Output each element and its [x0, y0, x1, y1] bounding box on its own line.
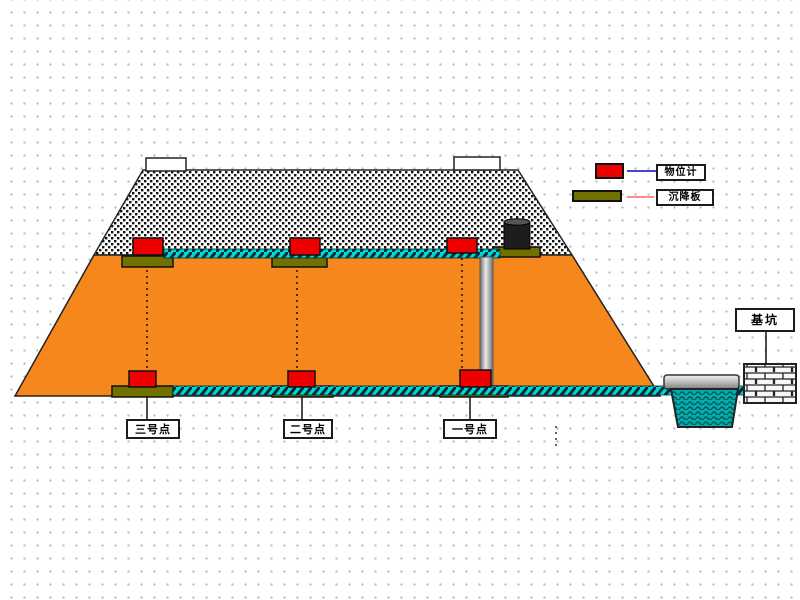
- riser-pipe: [480, 257, 493, 388]
- standpipe-icon: [504, 222, 530, 249]
- embankment-body: [15, 255, 660, 396]
- legend-label-settlement-plate: 沉降板: [656, 189, 714, 206]
- level-gauge-icon: [290, 238, 320, 255]
- collection-pond: [671, 389, 738, 427]
- point-label-1: 一号点: [443, 419, 497, 439]
- pit-label: 基坑: [735, 308, 795, 332]
- hmi-canvas: 三号点 二号点 一号点 基坑 物位计 沉降板: [0, 0, 800, 600]
- level-gauge-icon: [288, 371, 315, 387]
- crest-bracket-left: [146, 158, 186, 171]
- level-gauge-icon: [133, 238, 163, 255]
- rockfill-zone: [94, 170, 572, 255]
- brick-pit-icon: [744, 364, 796, 403]
- level-gauge-icon: [460, 370, 491, 387]
- legend-label-level-gauge: 物位计: [656, 164, 706, 181]
- standpipe-top: [504, 219, 530, 225]
- level-gauge-icon: [447, 238, 477, 253]
- dam-cross-section-drawing: [0, 0, 800, 600]
- settlement-plate-legend-icon: [572, 190, 622, 202]
- level-gauge-legend-icon: [595, 163, 624, 179]
- crest-bracket-right: [454, 157, 500, 170]
- point-label-2: 二号点: [283, 419, 333, 439]
- culvert-pipe-icon: [664, 375, 739, 389]
- legend-connector-pink: [627, 196, 654, 198]
- legend-connector-blue: [627, 170, 656, 172]
- level-gauge-icon: [129, 371, 156, 387]
- point-label-3: 三号点: [126, 419, 180, 439]
